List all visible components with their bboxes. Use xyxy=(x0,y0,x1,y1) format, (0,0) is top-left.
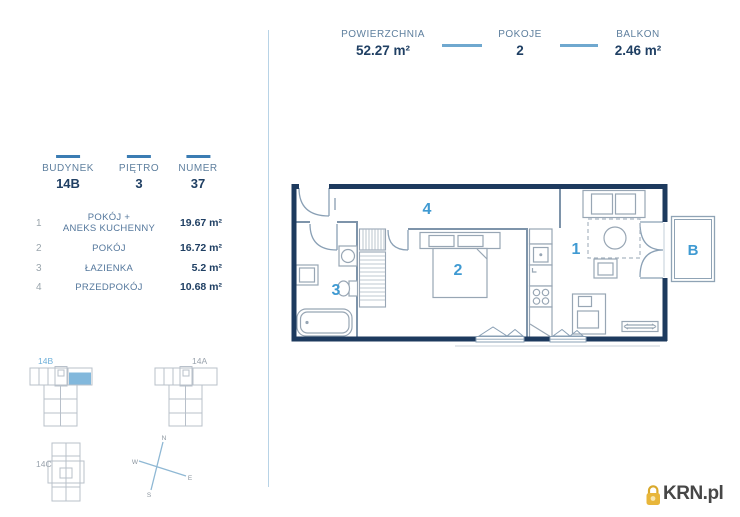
bed-pillow xyxy=(458,236,483,247)
field-number-value: 37 xyxy=(178,176,217,191)
room-label-2: 2 xyxy=(454,262,463,279)
room-label-3: 3 xyxy=(332,282,341,299)
room-area: 16.72 m² xyxy=(164,242,222,254)
balcony-label: B xyxy=(688,242,699,259)
entrance-door xyxy=(299,188,329,216)
field-tick xyxy=(186,155,210,158)
vertical-divider xyxy=(268,30,269,487)
floor-plan-page: POWIERZCHNIA 52.27 m² POKOJE 2 BALKON 2.… xyxy=(0,0,740,517)
dining-table xyxy=(604,227,626,249)
room-number: 4 xyxy=(36,282,54,293)
highlighted-unit xyxy=(69,373,91,385)
bed-pillow xyxy=(429,236,454,247)
field-tick xyxy=(56,155,80,158)
room-number: 2 xyxy=(36,243,54,254)
compass-cross xyxy=(139,442,186,490)
building-14a-footprint xyxy=(155,367,217,427)
room-name: ŁAZIENKA xyxy=(54,263,164,274)
bathroom-door xyxy=(310,224,337,250)
room-label-1: 1 xyxy=(572,241,581,258)
field-building: BUDYNEK 14B xyxy=(42,155,94,191)
balcony-french-doors xyxy=(640,222,663,278)
stove xyxy=(530,286,553,307)
burner xyxy=(542,289,548,295)
building-14a-label: 14A xyxy=(192,356,207,366)
header-separator xyxy=(442,44,482,47)
krn-logo: KRN.pl xyxy=(643,482,723,506)
room-area: 5.2 m² xyxy=(164,262,222,274)
chair-seat xyxy=(598,263,613,275)
stat-area: POWIERZCHNIA 52.27 m² xyxy=(341,29,425,58)
fridge xyxy=(530,229,553,244)
monitor xyxy=(579,297,592,307)
field-number-label: NUMER xyxy=(178,163,217,174)
padlock-icon xyxy=(643,482,663,506)
room-number: 1 xyxy=(36,218,54,229)
logo-text: KRN.pl xyxy=(663,482,723,506)
sink-drain xyxy=(539,253,542,256)
room-name: POKÓJ + ANEKS KUCHENNY xyxy=(54,212,164,234)
building-14b-label: 14B xyxy=(38,356,53,366)
burner xyxy=(533,289,539,295)
header-separator xyxy=(560,44,598,47)
building-14c-label: 14C xyxy=(36,459,52,469)
floor-plan-drawing: 1 2 3 4 B xyxy=(280,175,730,355)
room-area: 10.68 m² xyxy=(164,281,222,293)
room-label-4: 4 xyxy=(423,201,432,218)
stat-rooms-value: 2 xyxy=(498,43,542,58)
stat-balcony-label: BALKON xyxy=(615,29,662,40)
field-building-label: BUDYNEK xyxy=(42,163,94,174)
room-list-row: 4 PRZEDPOKÓJ 10.68 m² xyxy=(36,280,222,294)
site-plan: 14B 14A 14C N W E S xyxy=(20,350,245,510)
compass-north-label: N xyxy=(162,435,167,442)
washbasin xyxy=(300,268,315,282)
sofa-cushion xyxy=(592,194,613,214)
field-number: NUMER 37 xyxy=(178,155,217,191)
radiator xyxy=(622,322,658,332)
washing-machine-drum xyxy=(342,250,355,263)
room-name: POKÓJ xyxy=(54,243,164,254)
stat-area-label: POWIERZCHNIA xyxy=(341,29,425,40)
compass: N W E S xyxy=(132,435,193,499)
field-floor-value: 3 xyxy=(119,176,159,191)
window-tilt-symbol xyxy=(479,327,523,336)
compass-west-label: W xyxy=(132,459,139,466)
field-floor: PIĘTRO 3 xyxy=(119,155,159,191)
stat-balcony: BALKON 2.46 m² xyxy=(615,29,662,58)
bedroom-door xyxy=(388,230,408,250)
room-area: 19.67 m² xyxy=(164,217,222,229)
burner xyxy=(542,298,548,304)
toilet-tank xyxy=(349,281,358,296)
burner xyxy=(533,298,539,304)
field-floor-label: PIĘTRO xyxy=(119,163,159,174)
stat-balcony-value: 2.46 m² xyxy=(615,43,662,58)
field-building-value: 14B xyxy=(42,176,94,191)
room-number: 3 xyxy=(36,263,54,274)
room-list-row: 3 ŁAZIENKA 5.2 m² xyxy=(36,261,222,275)
compass-east-label: E xyxy=(188,475,193,482)
kitchen-cabinet xyxy=(530,307,553,338)
building-14b-footprint xyxy=(30,367,92,427)
room-list-row: 1 POKÓJ + ANEKS KUCHENNY 19.67 m² xyxy=(36,210,222,236)
desk-chair xyxy=(578,311,599,328)
building-14c-footprint xyxy=(48,443,84,501)
stat-area-value: 52.27 m² xyxy=(341,43,425,58)
sofa-cushion xyxy=(616,194,636,214)
room-name: PRZEDPOKÓJ xyxy=(54,282,164,293)
room-list-row: 2 POKÓJ 16.72 m² xyxy=(36,241,222,255)
field-tick xyxy=(127,155,151,158)
stat-rooms: POKOJE 2 xyxy=(498,29,542,58)
compass-south-label: S xyxy=(147,492,152,499)
bathtub-drain xyxy=(305,321,308,324)
stat-rooms-label: POKOJE xyxy=(498,29,542,40)
